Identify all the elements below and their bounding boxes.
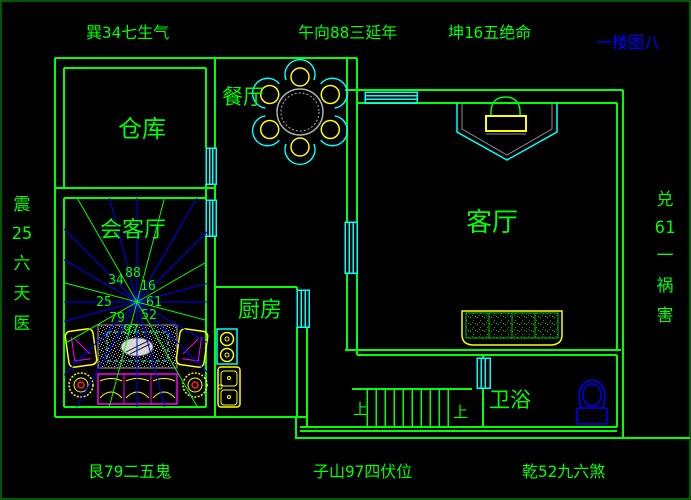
right-vertical-char: 兑 bbox=[657, 190, 674, 210]
compass-number-sw: 16 bbox=[140, 279, 156, 294]
left-vertical-char: 震 bbox=[14, 195, 31, 215]
right-vertical-char: 祸 bbox=[657, 276, 674, 296]
room-label-dining: 餐厅 bbox=[222, 85, 264, 109]
compass-number-e: 25 bbox=[96, 295, 112, 310]
room-label-bath: 卫浴 bbox=[489, 388, 531, 412]
toilet bbox=[577, 380, 607, 424]
perimeter-label-bottom-left: 艮79二五鬼 bbox=[88, 462, 171, 481]
right-vertical-char: 一 bbox=[657, 246, 674, 266]
compass-number-nw: 52 bbox=[141, 308, 157, 323]
kitchen-stove bbox=[217, 329, 237, 364]
cad-floorplan-canvas: 34 88 16 25 61 79 97 52 仓库 餐厅 会客厅 厨房 客厅 … bbox=[0, 0, 691, 500]
room-label-living: 客厅 bbox=[466, 208, 518, 238]
living-room-couch bbox=[462, 311, 562, 345]
compass-number-se: 34 bbox=[108, 273, 124, 288]
room-label-reception: 会客厅 bbox=[100, 218, 166, 243]
left-vertical-char: 25 bbox=[12, 224, 32, 244]
window-storeroom-right bbox=[206, 148, 216, 184]
room-label-storeroom: 仓库 bbox=[118, 115, 166, 143]
compass-number-s: 88 bbox=[125, 266, 141, 281]
kitchen-sink bbox=[218, 367, 240, 407]
stairs bbox=[367, 390, 448, 427]
dining-chair bbox=[285, 60, 315, 86]
stairs-up-label-left: 上 bbox=[353, 400, 368, 418]
perimeter-label-top-right: 坤16五绝命 bbox=[448, 23, 531, 42]
room-label-kitchen: 厨房 bbox=[238, 298, 282, 323]
floor-title: 一楼图八 bbox=[596, 33, 660, 52]
window-living-top bbox=[365, 92, 417, 103]
perimeter-label-bottom-right: 乾52九六煞 bbox=[522, 462, 605, 481]
dining-table-set bbox=[247, 60, 353, 165]
left-vertical-char: 天 bbox=[14, 284, 31, 304]
left-vertical-char: 医 bbox=[14, 314, 31, 334]
window-bath-left bbox=[477, 358, 490, 388]
perimeter-label-top-center: 午向88三延年 bbox=[298, 23, 397, 42]
dining-chair bbox=[247, 112, 285, 151]
perimeter-label-bottom-center: 子山97四伏位 bbox=[313, 462, 412, 481]
window-living-left bbox=[345, 222, 357, 273]
right-vertical-char: 害 bbox=[657, 306, 674, 326]
stairs-up-label-right: 上 bbox=[453, 403, 468, 421]
window-reception-right bbox=[206, 200, 216, 236]
perimeter-label-right-vertical: 兑 61 一 祸 害 bbox=[655, 190, 675, 326]
floorplan-drawing: 34 88 16 25 61 79 97 52 仓库 餐厅 会客厅 厨房 客厅 … bbox=[0, 0, 691, 500]
perimeter-label-left-vertical: 震 25 六 天 医 bbox=[12, 195, 32, 334]
dining-chair bbox=[285, 138, 315, 164]
right-vertical-char: 61 bbox=[655, 218, 675, 238]
potted-plant-right bbox=[183, 373, 207, 397]
window-kitchen-right bbox=[297, 290, 309, 327]
perimeter-label-top-left: 巽34七生气 bbox=[86, 23, 169, 42]
compass-number-n: 97 bbox=[123, 323, 139, 338]
left-vertical-char: 六 bbox=[14, 254, 31, 274]
